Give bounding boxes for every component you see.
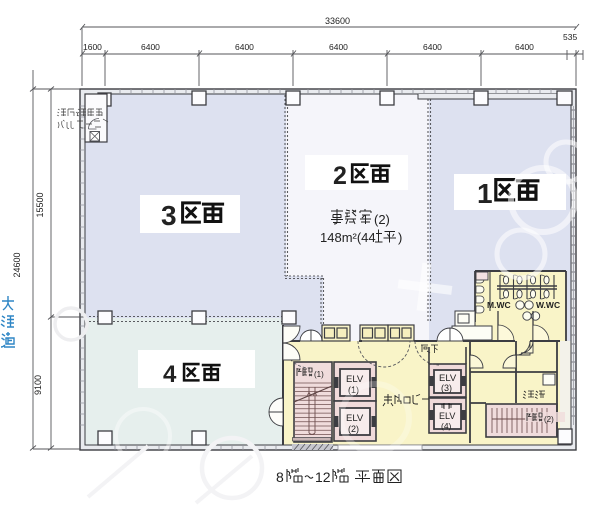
svg-text:(2): (2) [544, 415, 554, 424]
svg-text:8: 8 [276, 469, 284, 485]
svg-text:1600: 1600 [83, 42, 102, 52]
svg-text:2: 2 [333, 162, 347, 190]
svg-text:6400: 6400 [515, 42, 534, 52]
svg-text:24600: 24600 [12, 252, 22, 277]
svg-text:(3): (3) [441, 383, 452, 393]
svg-text:15500: 15500 [35, 192, 45, 217]
svg-text:(1): (1) [314, 370, 324, 379]
svg-text:6400: 6400 [141, 42, 160, 52]
svg-text:535: 535 [563, 32, 577, 42]
svg-text:6400: 6400 [423, 42, 442, 52]
svg-text:M.WC: M.WC [487, 300, 511, 310]
svg-text:ELV: ELV [346, 413, 364, 424]
svg-text:4: 4 [163, 361, 177, 388]
svg-text:(2): (2) [374, 212, 390, 227]
svg-text:6400: 6400 [235, 42, 254, 52]
svg-text:(2): (2) [348, 424, 359, 434]
svg-text:ELV: ELV [346, 374, 364, 385]
svg-text:9100: 9100 [33, 375, 43, 395]
svg-text:W.WC: W.WC [536, 300, 560, 310]
svg-text:6400: 6400 [329, 42, 348, 52]
svg-text:1: 1 [477, 178, 493, 209]
svg-text:3: 3 [161, 200, 177, 231]
svg-text:12: 12 [315, 469, 331, 485]
svg-text:148m²(44: 148m²(44 [320, 230, 376, 245]
svg-text:): ) [398, 230, 402, 245]
svg-text:33600: 33600 [325, 16, 350, 26]
svg-text:ELV: ELV [439, 411, 455, 421]
svg-text:(4): (4) [441, 421, 452, 431]
